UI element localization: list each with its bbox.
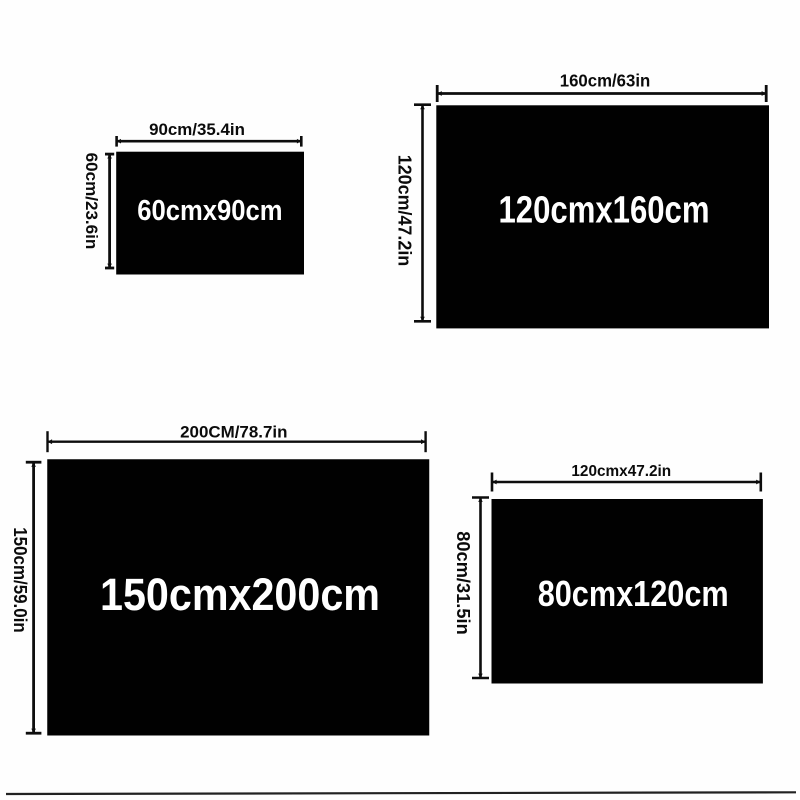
svg-text:90cm/35.4in: 90cm/35.4in (149, 121, 245, 139)
svg-text:120cm/47.2in: 120cm/47.2in (394, 155, 414, 267)
svg-text:60cmx90cm: 60cmx90cm (137, 195, 282, 227)
svg-text:120cmx160cm: 120cmx160cm (499, 188, 710, 231)
svg-text:150cmx200cm: 150cmx200cm (100, 569, 380, 620)
svg-text:200CM/78.7in: 200CM/78.7in (180, 423, 287, 442)
svg-text:60cm/23.6in: 60cm/23.6in (82, 153, 101, 250)
svg-text:160cm/63in: 160cm/63in (560, 70, 651, 90)
svg-text:150cm/59.0in: 150cm/59.0in (10, 527, 30, 633)
svg-text:80cm/31.5in: 80cm/31.5in (453, 531, 473, 635)
svg-text:120cmx47.2in: 120cmx47.2in (571, 463, 671, 480)
svg-text:80cmx120cm: 80cmx120cm (538, 573, 729, 614)
